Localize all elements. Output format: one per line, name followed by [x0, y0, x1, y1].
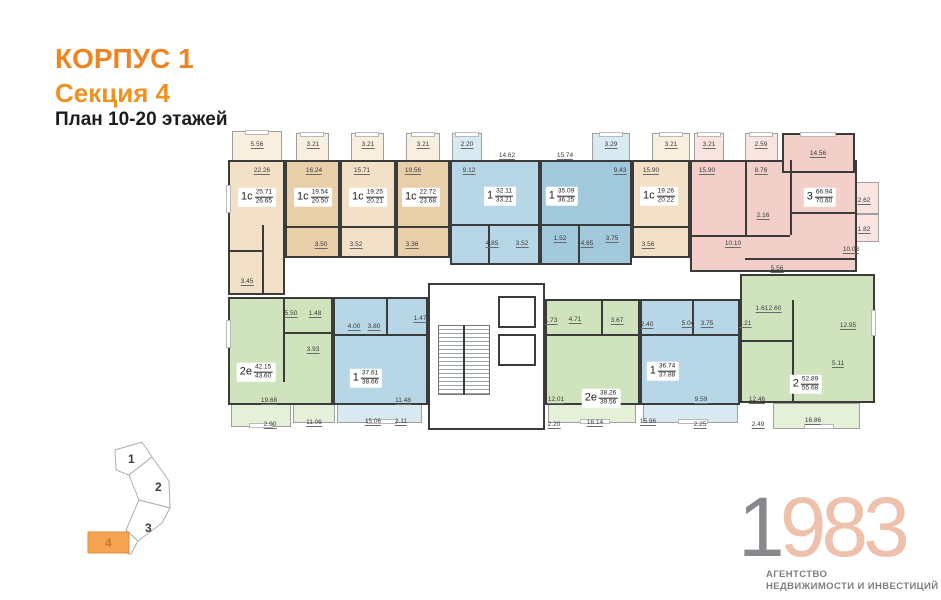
- apartment-areas: 19.5420.50: [311, 189, 329, 206]
- area-living: 19.26: [657, 188, 675, 197]
- window: [697, 132, 721, 137]
- dimension-label: 3.52: [516, 240, 529, 248]
- area-total: 70.60: [815, 198, 833, 206]
- elevator-shaft: [498, 334, 536, 366]
- apartment-1[interactable]: [228, 160, 285, 295]
- interior-wall: [790, 212, 857, 214]
- dimension-label: 8.76: [755, 167, 768, 175]
- area-living: 37.61: [361, 370, 379, 379]
- dimension-label: 2.62: [858, 197, 871, 205]
- area-living: 38.26: [599, 390, 617, 399]
- window: [659, 132, 683, 137]
- dimension-label: 2.16: [757, 212, 770, 220]
- interior-wall: [396, 226, 450, 228]
- dimension-label: 1.52: [554, 235, 567, 243]
- apartment-areas: 22.7223.68: [419, 189, 437, 206]
- apartment-areas: 32.1133.21: [495, 188, 513, 205]
- dimension-label: 3.50: [315, 241, 328, 249]
- dimension-label: 3.56: [642, 241, 655, 249]
- apartment-11-label: 2е38.2639.56: [582, 389, 621, 408]
- area-total: 37.88: [658, 372, 676, 380]
- interior-wall: [745, 258, 857, 260]
- interior-wall: [690, 235, 790, 237]
- dimension-label: 2.59: [755, 141, 768, 149]
- window: [800, 132, 836, 137]
- dimension-label: 4.00: [348, 323, 361, 331]
- dimension-label: 3.52: [350, 241, 363, 249]
- interior-wall: [283, 332, 333, 334]
- elevator-shaft: [498, 296, 536, 328]
- agency-logo: 1983 АГЕНТСТВО НЕДВИЖИМОСТИ И ИНВЕСТИЦИЙ: [738, 492, 938, 593]
- dimension-label: 1.73: [545, 317, 558, 325]
- minimap-label-4: 4: [105, 536, 112, 550]
- area-living: 42.15: [254, 364, 272, 373]
- dimension-label: 4.85: [486, 240, 499, 248]
- dimension-label: 15.06: [365, 418, 381, 426]
- apartment-areas: 25.7126.65: [255, 189, 273, 206]
- dimension-label: 5.56: [771, 265, 784, 273]
- interior-wall: [228, 250, 262, 252]
- dimension-label: 3.45: [241, 278, 254, 286]
- dimension-label: 5.56: [251, 141, 264, 149]
- dimension-label: 3.67: [611, 317, 624, 325]
- dimension-label: 2.49: [752, 421, 765, 429]
- window: [749, 132, 773, 137]
- area-total: 20.22: [657, 197, 675, 205]
- dimension-label: 9.43: [614, 167, 627, 175]
- interior-wall: [333, 334, 428, 336]
- window: [871, 310, 876, 336]
- apartment-type: 1с: [643, 190, 655, 202]
- dimension-label: 15.71: [354, 167, 370, 175]
- logo-year: 1983: [738, 492, 938, 563]
- interior-wall: [578, 224, 580, 265]
- apartment-areas: 19.2620.22: [657, 188, 675, 205]
- interior-wall: [601, 299, 603, 334]
- apartment-type: 1с: [352, 191, 364, 203]
- minimap-label-2: 2: [155, 480, 162, 494]
- area-living: 35.09: [557, 188, 575, 197]
- dimension-label: 19.68: [261, 397, 277, 405]
- dimension-label: 5.50: [285, 310, 298, 318]
- dimension-label: 3.21: [417, 141, 430, 149]
- dimension-label: 14.62: [499, 152, 515, 160]
- interior-wall: [340, 226, 396, 228]
- dimension-label: 3.75: [701, 320, 714, 328]
- apartment-areas: 52.8955.68: [801, 376, 819, 393]
- area-living: 19.25: [366, 189, 384, 198]
- area-living: 52.89: [801, 376, 819, 385]
- dimension-label: 10.10: [725, 240, 741, 248]
- apartment-type: 2е: [585, 392, 597, 404]
- dimension-label: 3.93: [307, 346, 320, 354]
- window: [300, 132, 324, 137]
- apartment-areas: 19.2520.21: [366, 189, 384, 206]
- apartment-type: 1: [353, 372, 359, 384]
- interior-wall: [545, 334, 640, 336]
- area-total: 20.50: [311, 198, 329, 206]
- dimension-label: 1.47: [414, 315, 427, 323]
- window: [226, 320, 231, 348]
- apartment-6-label: 135.0936.25: [546, 187, 578, 206]
- minimap-label-1: 1: [128, 452, 135, 466]
- apartment-8[interactable]: [690, 160, 857, 272]
- apartment-areas: 38.2639.56: [599, 390, 617, 407]
- apartment-areas: 37.6138.66: [361, 370, 379, 387]
- area-total: 55.68: [801, 385, 819, 393]
- dimension-label: 3.21: [665, 141, 678, 149]
- area-total: 33.21: [495, 197, 513, 205]
- dimension-label: 6.21: [739, 320, 752, 328]
- dimension-label: 15.90: [699, 167, 715, 175]
- interior-wall: [740, 340, 792, 342]
- window: [355, 132, 379, 137]
- dimension-label: 2.90: [264, 421, 277, 429]
- apartment-6[interactable]: [540, 160, 632, 265]
- dimension-label: 3.21: [307, 141, 320, 149]
- apartment-areas: 66.9470.60: [815, 189, 833, 206]
- interior-wall: [640, 334, 740, 336]
- dimension-label: 14.56: [810, 150, 826, 158]
- apartment-9-label: 2е42.1543.60: [237, 363, 276, 382]
- interior-wall: [692, 299, 694, 334]
- window: [226, 185, 231, 213]
- dimension-label: 2.25: [694, 421, 707, 429]
- interior-wall: [745, 160, 747, 235]
- area-total: 36.25: [557, 197, 575, 205]
- dimension-label: 2.11: [395, 418, 407, 426]
- dimension-label: 1.82: [858, 226, 871, 234]
- apartment-areas: 36.7437.88: [658, 363, 676, 380]
- area-living: 36.74: [658, 363, 676, 372]
- dimension-label: 3.36: [406, 241, 419, 249]
- area-total: 26.65: [255, 198, 273, 206]
- area-living: 32.11: [495, 188, 513, 197]
- interior-wall: [386, 297, 388, 334]
- dimension-label: 3.21: [703, 141, 716, 149]
- area-total: 23.68: [419, 198, 437, 206]
- dimension-label: 9.12: [463, 167, 476, 175]
- area-living: 25.71: [255, 189, 273, 198]
- area-total: 39.56: [599, 399, 617, 407]
- area-living: 66.94: [815, 189, 833, 198]
- interior-wall: [540, 224, 632, 226]
- dimension-label: 11.48: [395, 397, 411, 405]
- apartment-4-label: 1с22.7223.68: [402, 188, 440, 207]
- dimension-label: 15.90: [643, 167, 659, 175]
- dimension-label: 3.29: [605, 141, 618, 149]
- apartment-type: 2е: [240, 366, 252, 378]
- dimension-label: 3.75: [606, 235, 619, 243]
- apartment-type: 3: [807, 191, 813, 203]
- floor-plan-page: КОРПУС 1 Секция 4 План 10-20 этажей 1с25…: [0, 0, 941, 600]
- dimension-label: 11.06: [306, 419, 322, 427]
- interior-wall: [790, 160, 792, 235]
- dimension-label: 4.71: [569, 316, 582, 324]
- logo-year-digit-1: 1: [738, 480, 780, 574]
- interior-wall: [450, 224, 540, 226]
- dimension-label: 16.24: [306, 167, 322, 175]
- apartment-13-label: 252.8955.68: [790, 375, 822, 394]
- apartment-type: 1с: [405, 191, 417, 203]
- apartment-type: 1: [549, 190, 555, 202]
- apartment-8-label: 366.9470.60: [804, 188, 836, 207]
- window: [411, 132, 435, 137]
- dimension-label: 15.96: [640, 418, 656, 426]
- dimension-label: 2.20: [548, 421, 561, 429]
- dimension-label: 2.60: [769, 305, 782, 313]
- dimension-label: 5.11: [832, 360, 844, 368]
- dimension-label: 2.40: [641, 321, 654, 329]
- interior-wall: [285, 226, 340, 228]
- window: [455, 132, 479, 137]
- apartment-areas: 42.1543.60: [254, 364, 272, 381]
- dimension-label: 10.03: [843, 246, 859, 254]
- apartment-3-label: 1с19.2520.21: [349, 188, 387, 207]
- dimension-label: 15.74: [557, 152, 573, 160]
- apartment-2-label: 1с19.5420.50: [294, 188, 332, 207]
- dimension-label: 4.65: [581, 240, 594, 248]
- apartment-5-label: 132.1133.21: [484, 187, 516, 206]
- apartment-type: 1: [650, 365, 656, 377]
- dimension-label: 22.26: [254, 167, 270, 175]
- apartment-10[interactable]: [333, 297, 428, 405]
- area-total: 20.21: [366, 198, 384, 206]
- area-living: 22.72: [419, 189, 437, 198]
- dimension-label: 12.95: [840, 322, 856, 330]
- dimension-label: 2.20: [461, 141, 474, 149]
- interior-wall: [262, 225, 264, 295]
- interior-wall: [632, 226, 690, 228]
- dimension-label: 16.14: [587, 419, 603, 427]
- logo-caption-line1: АГЕНТСТВО: [766, 569, 827, 580]
- dimension-label: 12.01: [548, 396, 564, 404]
- apartment-12[interactable]: [640, 299, 740, 405]
- section-locator-map: 1 2 3 4: [75, 438, 205, 568]
- dimension-label: 12.46: [749, 396, 765, 404]
- apartment-12-label: 136.7437.88: [647, 362, 679, 381]
- minimap-label-3: 3: [145, 521, 152, 535]
- dimension-label: 5.04: [682, 320, 695, 328]
- dimension-label: 3.21: [362, 141, 375, 149]
- dimension-label: 19.56: [405, 167, 421, 175]
- dimension-label: 3.80: [368, 323, 381, 331]
- dimension-label: 1.61: [756, 305, 769, 313]
- area-total: 38.66: [361, 379, 379, 387]
- interior-wall: [463, 325, 465, 395]
- area-living: 19.54: [311, 189, 329, 198]
- dimension-label: 9.59: [695, 396, 708, 404]
- window: [599, 132, 623, 137]
- dimension-label: 16.86: [805, 417, 821, 425]
- logo-year-digits-983: 983: [780, 480, 905, 574]
- apartment-10-label: 137.6138.66: [350, 369, 382, 388]
- apartment-7-label: 1с19.2620.22: [640, 187, 678, 206]
- logo-caption-line2: НЕДВИЖИМОСТИ И ИНВЕСТИЦИЙ: [766, 581, 938, 592]
- apartment-type: 2: [793, 378, 799, 390]
- apartment-type: 1с: [297, 191, 309, 203]
- apartment-5[interactable]: [450, 160, 540, 265]
- dimension-label: 1.48: [309, 310, 322, 318]
- apartment-type: 1: [487, 190, 493, 202]
- apartment-type: 1с: [241, 191, 253, 203]
- apartment-1-label: 1с25.7126.65: [238, 188, 276, 207]
- window: [245, 130, 269, 135]
- apartment-areas: 35.0936.25: [557, 188, 575, 205]
- area-total: 43.60: [254, 373, 272, 381]
